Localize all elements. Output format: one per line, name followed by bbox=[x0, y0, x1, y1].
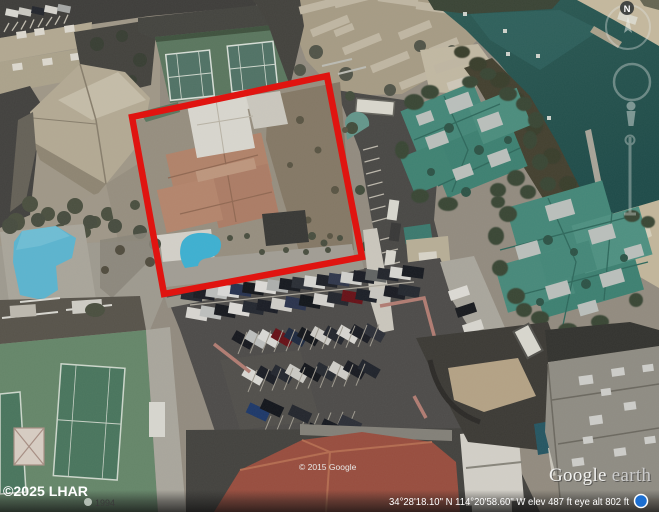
svg-text:N: N bbox=[624, 4, 631, 15]
svg-text:Google earth: Google earth bbox=[549, 465, 652, 486]
svg-text:© 2015 Google: © 2015 Google bbox=[299, 462, 357, 472]
svg-text:1994: 1994 bbox=[95, 498, 115, 508]
svg-text:©2025 LHAR: ©2025 LHAR bbox=[3, 483, 88, 499]
svg-text:34°28'18.10" N 114°20'58.60": 34°28'18.10" N 114°20'58.60" W elev 487 … bbox=[389, 496, 629, 508]
